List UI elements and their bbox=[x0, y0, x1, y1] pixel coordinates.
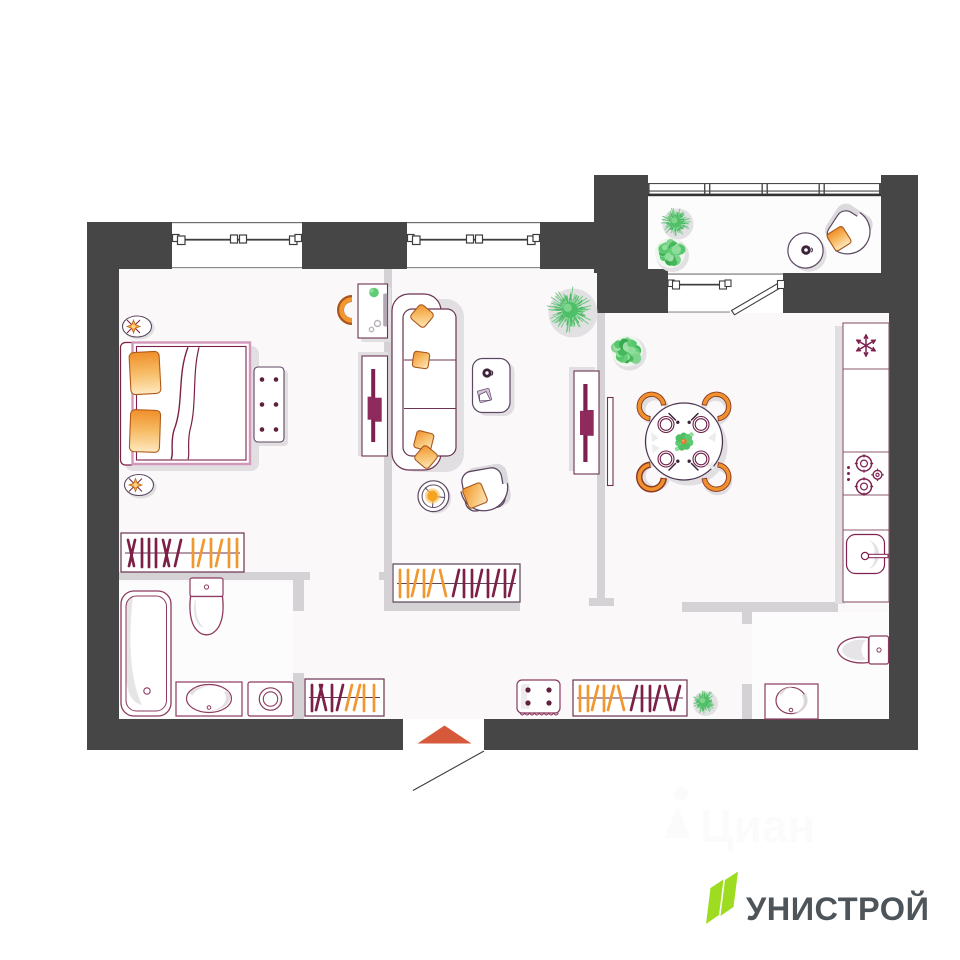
svg-text:Циан: Циан bbox=[700, 800, 815, 852]
svg-text:УНИСТРОЙ: УНИСТРОЙ bbox=[746, 889, 929, 927]
